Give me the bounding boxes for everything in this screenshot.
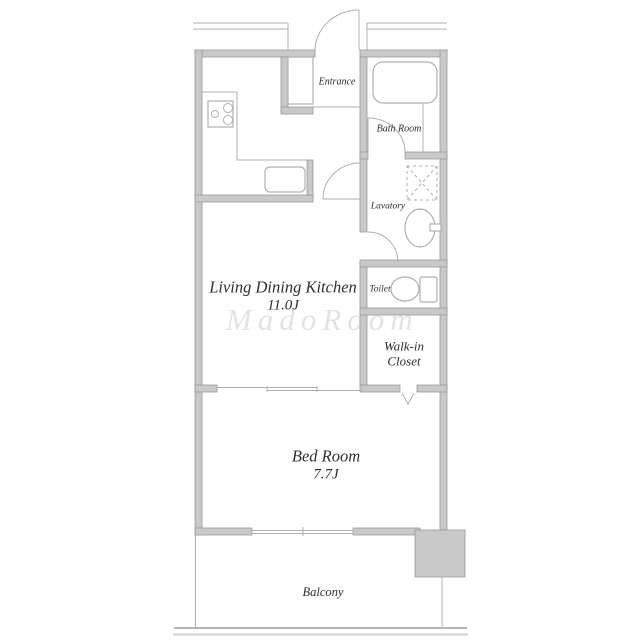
floor-plan: MadoRoom Entrance Bath Room Lavatory Toi… — [0, 0, 640, 640]
wall-wic-bottom-left — [360, 385, 400, 392]
wic-entry-marker — [402, 393, 414, 404]
wall-left — [195, 50, 202, 535]
bedroom-name: Bed Room — [292, 447, 360, 467]
wall-bed-bottom-left — [195, 528, 252, 535]
balcony-label: Balcony — [303, 585, 344, 599]
ldk-name: Living Dining Kitchen — [209, 278, 357, 298]
wall-bath-lav-left — [360, 152, 368, 159]
toilet-tank — [420, 277, 437, 302]
toilet-bowl — [391, 277, 419, 301]
kitchen-sink — [265, 167, 305, 192]
wall-kitchen-stub — [307, 160, 313, 200]
wall-kitchen-ldk — [195, 195, 313, 202]
bedroom-label: Bed Room 7.7J — [292, 447, 360, 484]
wall-bed-bottom-right — [353, 528, 420, 535]
lavatory-fixtures — [368, 166, 441, 262]
entrance-label: Entrance — [319, 76, 356, 87]
corridor-lines — [193, 23, 447, 50]
toilet-label: Toilet — [369, 285, 390, 296]
wall-right — [440, 50, 447, 530]
wall-wic-bottom-right — [417, 385, 447, 392]
wall-column-upper — [360, 57, 367, 232]
pillar-block — [415, 530, 465, 577]
sliding-partition — [217, 386, 363, 392]
lavatory-label: Lavatory — [371, 202, 405, 213]
shoe-cabinet — [288, 57, 313, 104]
basin-faucet — [430, 224, 441, 231]
balcony-window — [252, 527, 353, 536]
ldk-label: Living Dining Kitchen 11.0J — [209, 278, 357, 315]
entrance-door-swing — [315, 10, 359, 51]
walk-in-closet-label: Walk-in Closet — [368, 339, 440, 368]
ldk-door-swing — [323, 163, 360, 199]
bedroom-size: 7.7J — [292, 467, 360, 484]
lavatory-door-swing — [368, 232, 398, 262]
wall-bath-lav-right — [405, 152, 447, 159]
bathroom-fixtures — [368, 62, 437, 152]
wall-partition-stub — [195, 385, 217, 392]
toilet-fixtures — [391, 277, 437, 302]
wall-top-right — [360, 50, 447, 57]
bathtub — [373, 62, 437, 103]
wall-entrance-horiz — [281, 107, 313, 114]
wall-entrance-vert — [281, 57, 288, 114]
wall-top-left — [195, 50, 315, 57]
ldk-size: 11.0J — [209, 298, 357, 315]
wall-lav-toilet — [360, 260, 447, 267]
bathroom-label: Bath Room — [377, 123, 422, 134]
